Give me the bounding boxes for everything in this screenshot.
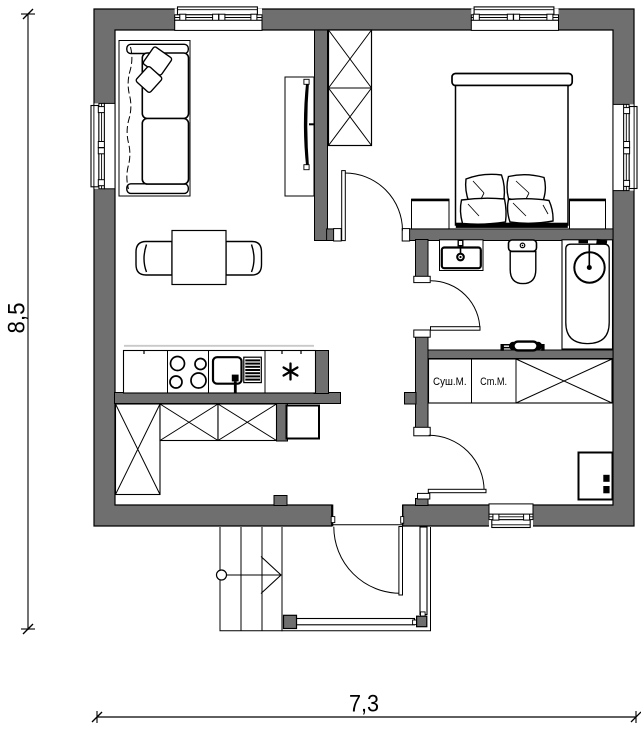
svg-text:Cm.M.: Cm.M. xyxy=(480,376,507,388)
svg-text:8,5: 8,5 xyxy=(4,303,31,334)
svg-text:Cyш.M.: Cyш.M. xyxy=(433,376,467,388)
svg-text:7,3: 7,3 xyxy=(349,691,379,718)
